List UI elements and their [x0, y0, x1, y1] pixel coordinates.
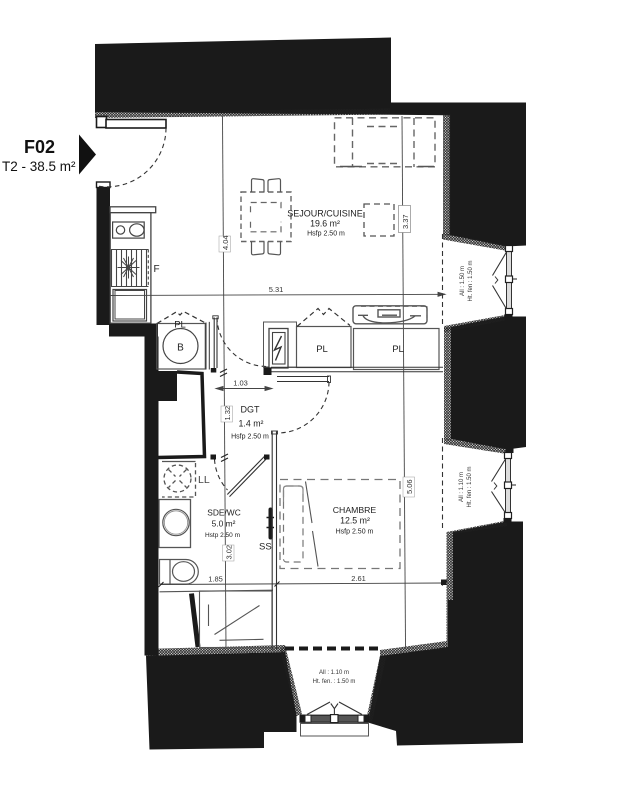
- svg-text:Hsfp 2.50 m: Hsfp 2.50 m: [336, 529, 374, 536]
- svg-text:1.4 m²: 1.4 m²: [239, 419, 264, 429]
- svg-text:PL: PL: [392, 344, 404, 355]
- svg-text:Ht. fen. : 1.50 m: Ht. fen. : 1.50 m: [313, 679, 356, 685]
- svg-text:F02: F02: [24, 137, 55, 157]
- svg-text:DGT: DGT: [241, 405, 261, 415]
- svg-text:4.04: 4.04: [221, 235, 230, 250]
- svg-text:12.5 m²: 12.5 m²: [340, 516, 370, 526]
- svg-text:B: B: [177, 343, 184, 354]
- svg-text:SS: SS: [259, 542, 272, 553]
- svg-text:5.06: 5.06: [405, 479, 414, 494]
- svg-text:1.32: 1.32: [223, 406, 232, 421]
- svg-text:Hstp 2.50 m: Hstp 2.50 m: [205, 532, 240, 539]
- svg-text:19.6 m²: 19.6 m²: [310, 219, 340, 229]
- svg-text:3.02: 3.02: [225, 545, 234, 560]
- svg-text:T2 - 38.5 m²: T2 - 38.5 m²: [2, 159, 76, 174]
- svg-text:All : 1.10 m: All : 1.10 m: [459, 472, 465, 502]
- svg-text:Ht. fen : 1.50 m: Ht. fen : 1.50 m: [468, 260, 474, 301]
- svg-text:F: F: [154, 264, 160, 275]
- svg-text:SDE/WC: SDE/WC: [207, 508, 241, 518]
- svg-text:CHAMBRE: CHAMBRE: [333, 505, 377, 515]
- svg-text:Hsfp 2.50 m: Hsfp 2.50 m: [231, 434, 269, 441]
- svg-text:5.31: 5.31: [269, 285, 284, 294]
- svg-text:SEJOUR/CUISINE: SEJOUR/CUISINE: [287, 209, 363, 219]
- svg-text:3.37: 3.37: [401, 214, 410, 229]
- svg-text:PL: PL: [174, 320, 186, 331]
- svg-text:5.0 m²: 5.0 m²: [212, 519, 236, 529]
- svg-text:PL: PL: [316, 344, 328, 355]
- svg-text:2.61: 2.61: [351, 574, 366, 583]
- svg-text:1.85: 1.85: [208, 575, 223, 584]
- svg-text:All : 1.50 m: All : 1.50 m: [460, 266, 466, 296]
- svg-text:Ht. fen : 1.50 m: Ht. fen : 1.50 m: [467, 466, 473, 507]
- svg-text:1.03: 1.03: [233, 379, 248, 388]
- svg-text:Hsfp 2.50 m: Hsfp 2.50 m: [307, 231, 345, 238]
- svg-text:LL: LL: [198, 474, 210, 486]
- svg-text:All : 1.10 m: All : 1.10 m: [319, 670, 349, 676]
